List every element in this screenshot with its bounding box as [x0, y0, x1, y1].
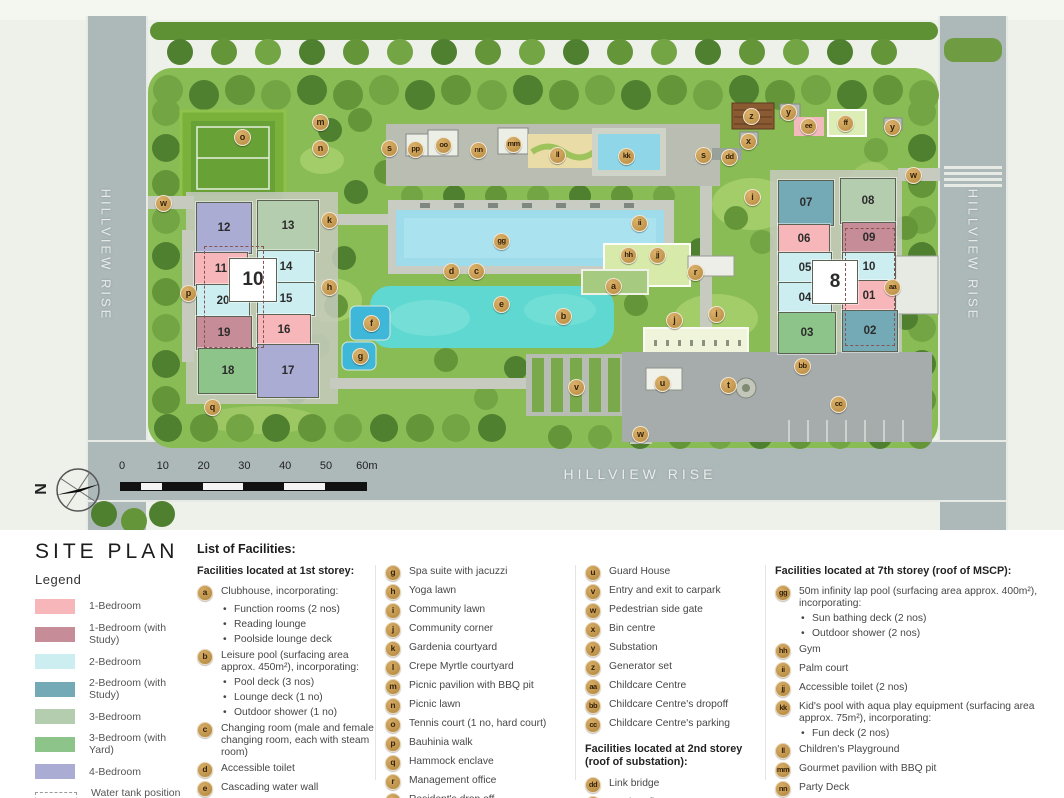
facility-item: kGardenia courtyard [385, 641, 570, 657]
legend: Legend 1-Bedroom1-Bedroom (with Study)2-… [35, 572, 190, 798]
facility-sub-item: Fun deck (2 nos) [812, 728, 1040, 740]
plan-marker-u: u [654, 375, 671, 392]
legend-item: 3-Bedroom (with Yard) [35, 732, 190, 756]
facility-item-label: 50m infinity lap pool (surfacing area ap… [799, 585, 1040, 610]
facility-marker-s: s [385, 793, 401, 798]
facility-sub-item: Lounge deck (1 no) [234, 692, 377, 704]
facility-item-label: Party Deck [799, 781, 849, 794]
legend-item: 1-Bedroom [35, 599, 190, 614]
facility-sub-item: Sun bathing deck (2 nos) [812, 613, 1040, 625]
legend-swatch [35, 737, 75, 752]
facility-item: vEntry and exit to carpark [585, 584, 765, 600]
facility-item: iCommunity lawn [385, 603, 570, 619]
facility-item-label: Management office [409, 774, 496, 787]
facility-item-label: Yoga lawn [409, 584, 456, 597]
facility-marker-m: m [385, 679, 401, 695]
plan-marker-y: y [780, 104, 797, 121]
facility-item-label: Crepe Myrtle courtyard [409, 660, 514, 673]
facility-item-label: Link bridge [609, 777, 659, 790]
facility-marker-e: e [197, 781, 213, 797]
facility-item-label: Community corner [409, 622, 493, 635]
facility-item-label: Accessible toilet [221, 762, 295, 775]
street-label-right: HILLVIEW RISE [966, 189, 981, 322]
facility-marker-n: n [385, 698, 401, 714]
plan-marker-aa: aa [884, 279, 901, 296]
plan-marker-f: f [363, 315, 380, 332]
unit-07: 07 [778, 180, 834, 226]
plan-marker-s: s [695, 147, 712, 164]
legend-item-label: 3-Bedroom [89, 711, 141, 723]
facility-item: aClubhouse, incorporating: [197, 585, 377, 601]
facility-sub-item: Function rooms (2 nos) [234, 604, 377, 616]
unit-08: 08 [840, 178, 896, 224]
facility-item: mmGourmet pavilion with BBQ pit [775, 762, 1040, 778]
scale-tick: 20 [197, 460, 209, 472]
legend-item-label: Water tank position (roof level) [91, 787, 190, 798]
facility-sub-item: Poolside lounge deck [234, 634, 377, 646]
facility-item: llChildren's Playground [775, 743, 1040, 759]
site-plan-page: 1213111420151916181710070806090510040103… [0, 0, 1064, 798]
facility-item: kkKid's pool with aqua play equipment (s… [775, 700, 1040, 725]
facility-marker-bb: bb [585, 698, 601, 714]
facility-item: eCascading water wall [197, 781, 377, 797]
legend-item: 4-Bedroom [35, 764, 190, 779]
facility-marker-k: k [385, 641, 401, 657]
facility-sub-item: Outdoor shower (1 no) [234, 707, 377, 719]
facility-marker-z: z [585, 660, 601, 676]
plan-marker-j: j [666, 312, 683, 329]
facility-marker-l: l [385, 660, 401, 676]
facility-marker-h: h [385, 584, 401, 600]
page-title: SITE PLAN [35, 540, 178, 564]
facility-item-label: Tennis court (1 no, hard court) [409, 717, 546, 730]
site-plan-map: 1213111420151916181710070806090510040103… [0, 0, 1064, 530]
plan-marker-b: b [555, 308, 572, 325]
facility-item: ySubstation [585, 641, 765, 657]
legend-swatch [35, 792, 77, 798]
water-tank-outline [204, 246, 264, 348]
facility-item: xBin centre [585, 622, 765, 638]
plan-marker-oo: oo [435, 137, 452, 154]
legend-item-label: 2-Bedroom [89, 656, 141, 668]
scale-tick: 30 [238, 460, 250, 472]
facility-sub-item: Outdoor shower (2 nos) [812, 628, 1040, 640]
plan-marker-ii: ii [631, 215, 648, 232]
facility-item: uGuard House [585, 565, 765, 581]
scale-tick: 60m [356, 460, 377, 472]
plan-marker-r: r [687, 264, 704, 281]
facility-marker-jj: jj [775, 681, 791, 697]
unit-17: 17 [257, 344, 319, 398]
facility-marker-a: a [197, 585, 213, 601]
plan-marker-q: q [204, 399, 221, 416]
facility-item-label: Children's Playground [799, 743, 899, 756]
facility-item-label: Picnic lawn [409, 698, 461, 711]
facility-item-label: Resident's drop off [409, 793, 494, 798]
street-label-left: HILLVIEW RISE [99, 189, 114, 322]
facility-item-label: Substation [609, 641, 658, 654]
facility-item: hhGym [775, 643, 1040, 659]
facility-sub-item: Pool deck (3 nos) [234, 677, 377, 689]
facility-item-label: Pedestrian side gate [609, 603, 703, 616]
facility-item: hYoga lawn [385, 584, 570, 600]
facility-item-label: Gym [799, 643, 821, 656]
facility-item-label: Bin centre [609, 622, 655, 635]
facility-item-label: Picnic pavilion with BBQ pit [409, 679, 534, 692]
legend-item-label: 3-Bedroom (with Yard) [89, 732, 190, 756]
facility-marker-hh: hh [775, 643, 791, 659]
facility-marker-o: o [385, 717, 401, 733]
facility-item: dAccessible toilet [197, 762, 377, 778]
facility-marker-ll: ll [775, 743, 791, 759]
facility-marker-p: p [385, 736, 401, 752]
plan-marker-p: p [180, 285, 197, 302]
facility-marker-kk: kk [775, 700, 791, 716]
info-panel: SITE PLAN Legend 1-Bedroom1-Bedroom (wit… [0, 530, 1064, 798]
facility-marker-dd: dd [585, 777, 601, 793]
legend-list: 1-Bedroom1-Bedroom (with Study)2-Bedroom… [35, 599, 190, 798]
facility-item-label: Bauhinia walk [409, 736, 473, 749]
plan-marker-t: t [720, 377, 737, 394]
facility-marker-u: u [585, 565, 601, 581]
plan-marker-x: x [740, 133, 757, 150]
facility-item: oTennis court (1 no, hard court) [385, 717, 570, 733]
facility-marker-ii: ii [775, 662, 791, 678]
plan-marker-mm: mm [505, 136, 522, 153]
facility-item-label: Hammock enclave [409, 755, 494, 768]
facility-item-label: Clubhouse, incorporating: [221, 585, 338, 598]
legend-swatch [35, 627, 75, 642]
plan-marker-bb: bb [794, 358, 811, 375]
facility-item-label: Childcare Centre's dropoff [609, 698, 728, 711]
plan-marker-w: w [905, 167, 922, 184]
facility-item-label: Community lawn [409, 603, 485, 616]
legend-swatch [35, 654, 75, 669]
facility-item: jCommunity corner [385, 622, 570, 638]
facility-marker-w: w [585, 603, 601, 619]
facility-item-label: Accessible toilet (2 nos) [799, 681, 908, 694]
plan-marker-g: g [352, 348, 369, 365]
compass-north-label: N [33, 483, 51, 495]
legend-item: 1-Bedroom (with Study) [35, 622, 190, 646]
legend-item: Water tank position (roof level) [35, 787, 190, 798]
legend-item: 2-Bedroom [35, 654, 190, 669]
plan-marker-gg: gg [493, 233, 510, 250]
facility-item-label: Gourmet pavilion with BBQ pit [799, 762, 936, 775]
plan-marker-dd: dd [721, 149, 738, 166]
unit-03: 03 [778, 312, 836, 354]
facility-item: bLeisure pool (surfacing area approx. 45… [197, 649, 377, 674]
legend-item-label: 4-Bedroom [89, 766, 141, 778]
facility-item: ccChildcare Centre's parking [585, 717, 765, 733]
facility-marker-d: d [197, 762, 213, 778]
facility-item: lCrepe Myrtle courtyard [385, 660, 570, 676]
facility-item: wPedestrian side gate [585, 603, 765, 619]
plan-marker-ll: ll [549, 147, 566, 164]
facilities-columns: Facilities located at 1st storey:aClubho… [197, 565, 1042, 795]
legend-swatch [35, 764, 75, 779]
facility-marker-aa: aa [585, 679, 601, 695]
facility-item: mPicnic pavilion with BBQ pit [385, 679, 570, 695]
facility-item: zGenerator set [585, 660, 765, 676]
scale-tick: 10 [157, 460, 169, 472]
plan-marker-n: n [312, 140, 329, 157]
facility-item-label: Cascading water wall [221, 781, 318, 794]
site-plan-illustration [0, 0, 1064, 530]
facility-marker-b: b [197, 649, 213, 665]
plan-marker-w: w [155, 195, 172, 212]
scale-tick: 0 [119, 460, 125, 472]
scale-tick: 50 [320, 460, 332, 472]
facility-item: pBauhinia walk [385, 736, 570, 752]
facility-marker-q: q [385, 755, 401, 771]
plan-marker-y: y [884, 119, 901, 136]
facility-item-label: Changing room (male and female changing … [221, 722, 377, 759]
facility-marker-nn: nn [775, 781, 791, 797]
facility-item-label: Entry and exit to carpark [609, 584, 721, 597]
facility-marker-gg: gg [775, 585, 791, 601]
facilities-column: Facilities located at 1st storey:aClubho… [197, 565, 377, 798]
facility-item-label: Leisure pool (surfacing area approx. 450… [221, 649, 377, 674]
column-divider [575, 565, 576, 780]
facility-item: rManagement office [385, 774, 570, 790]
compass: N [36, 458, 126, 524]
facility-sub-item: Reading lounge [234, 619, 377, 631]
facility-marker-c: c [197, 722, 213, 738]
unit-06: 06 [778, 224, 830, 254]
scale-ticks: 0102030405060m [120, 460, 380, 474]
facility-marker-g: g [385, 565, 401, 581]
facility-item-label: Palm court [799, 662, 848, 675]
legend-swatch [35, 709, 75, 724]
legend-heading: Legend [35, 572, 190, 587]
unit-16: 16 [257, 314, 311, 346]
facilities-column: uGuard HousevEntry and exit to carparkwP… [585, 565, 765, 798]
facility-item: sResident's drop off [385, 793, 570, 798]
facility-item: gSpa suite with jacuzzi [385, 565, 570, 581]
facility-item: jjAccessible toilet (2 nos) [775, 681, 1040, 697]
plan-marker-d: d [443, 263, 460, 280]
plan-marker-hh: hh [620, 247, 637, 264]
facility-marker-y: y [585, 641, 601, 657]
facility-marker-v: v [585, 584, 601, 600]
plan-marker-s: s [381, 140, 398, 157]
scale-tick: 40 [279, 460, 291, 472]
plan-marker-h: h [321, 279, 338, 296]
plan-marker-i: i [744, 189, 761, 206]
facility-item: iiPalm court [775, 662, 1040, 678]
legend-swatch [35, 599, 75, 614]
plan-marker-a: a [605, 278, 622, 295]
facility-item: nnParty Deck [775, 781, 1040, 797]
facilities-section-heading: Facilities located at 1st storey: [197, 565, 377, 578]
scale-bar: 0102030405060m [120, 460, 380, 496]
facility-item: aaChildcare Centre [585, 679, 765, 695]
facility-item: cChanging room (male and female changing… [197, 722, 377, 759]
facility-item-label: Childcare Centre [609, 679, 686, 692]
legend-swatch [35, 682, 75, 697]
legend-item-label: 2-Bedroom (with Study) [89, 677, 190, 701]
plan-marker-w: w [632, 426, 649, 443]
facility-item: ddLink bridge [585, 777, 765, 793]
facilities: List of Facilities: Facilities located a… [197, 542, 1042, 795]
facility-item-label: Childcare Centre's parking [609, 717, 730, 730]
facility-item: nPicnic lawn [385, 698, 570, 714]
legend-item: 3-Bedroom [35, 709, 190, 724]
facilities-section-heading: Facilities located at 2nd storey (roof o… [585, 743, 765, 770]
plan-marker-z: z [743, 108, 760, 125]
facility-item: qHammock enclave [385, 755, 570, 771]
facility-item: gg50m infinity lap pool (surfacing area … [775, 585, 1040, 610]
plan-marker-v: v [568, 379, 585, 396]
column-divider [765, 565, 766, 780]
facilities-section-heading: Facilities located at 7th storey (roof o… [775, 565, 1040, 578]
plan-marker-ff: ff [837, 115, 854, 132]
legend-item-label: 1-Bedroom (with Study) [89, 622, 190, 646]
facility-item-label: Kid's pool with aqua play equipment (sur… [799, 700, 1040, 725]
legend-item-label: 1-Bedroom [89, 600, 141, 612]
facility-marker-cc: cc [585, 717, 601, 733]
facility-marker-x: x [585, 622, 601, 638]
facility-marker-r: r [385, 774, 401, 790]
plan-marker-jj: jj [649, 247, 666, 264]
plan-marker-k: k [321, 212, 338, 229]
unit-13: 13 [257, 200, 319, 252]
facility-item-label: Spa suite with jacuzzi [409, 565, 507, 578]
plan-marker-e: e [493, 296, 510, 313]
plan-marker-ee: ee [800, 118, 817, 135]
street-label-bottom: HILLVIEW RISE [564, 466, 717, 482]
unit-18: 18 [198, 348, 258, 394]
plan-marker-kk: kk [618, 148, 635, 165]
plan-marker-c: c [468, 263, 485, 280]
plan-marker-pp: pp [407, 141, 424, 158]
plan-marker-m: m [312, 114, 329, 131]
scale-bar-segments [120, 482, 367, 491]
facility-item-label: Generator set [609, 660, 672, 673]
plan-marker-i: i [708, 306, 725, 323]
facility-marker-mm: mm [775, 762, 791, 778]
plan-marker-cc: cc [830, 396, 847, 413]
facilities-column: Facilities located at 7th storey (roof o… [775, 565, 1040, 798]
facilities-heading: List of Facilities: [197, 542, 1042, 556]
legend-item: 2-Bedroom (with Study) [35, 677, 190, 701]
facility-item-label: Guard House [609, 565, 670, 578]
facility-marker-i: i [385, 603, 401, 619]
facility-marker-j: j [385, 622, 401, 638]
plan-marker-o: o [234, 129, 251, 146]
facility-item: bbChildcare Centre's dropoff [585, 698, 765, 714]
plan-marker-nn: nn [470, 142, 487, 159]
facility-item-label: Gardenia courtyard [409, 641, 497, 654]
facilities-column: gSpa suite with jacuzzihYoga lawniCommun… [385, 565, 570, 798]
